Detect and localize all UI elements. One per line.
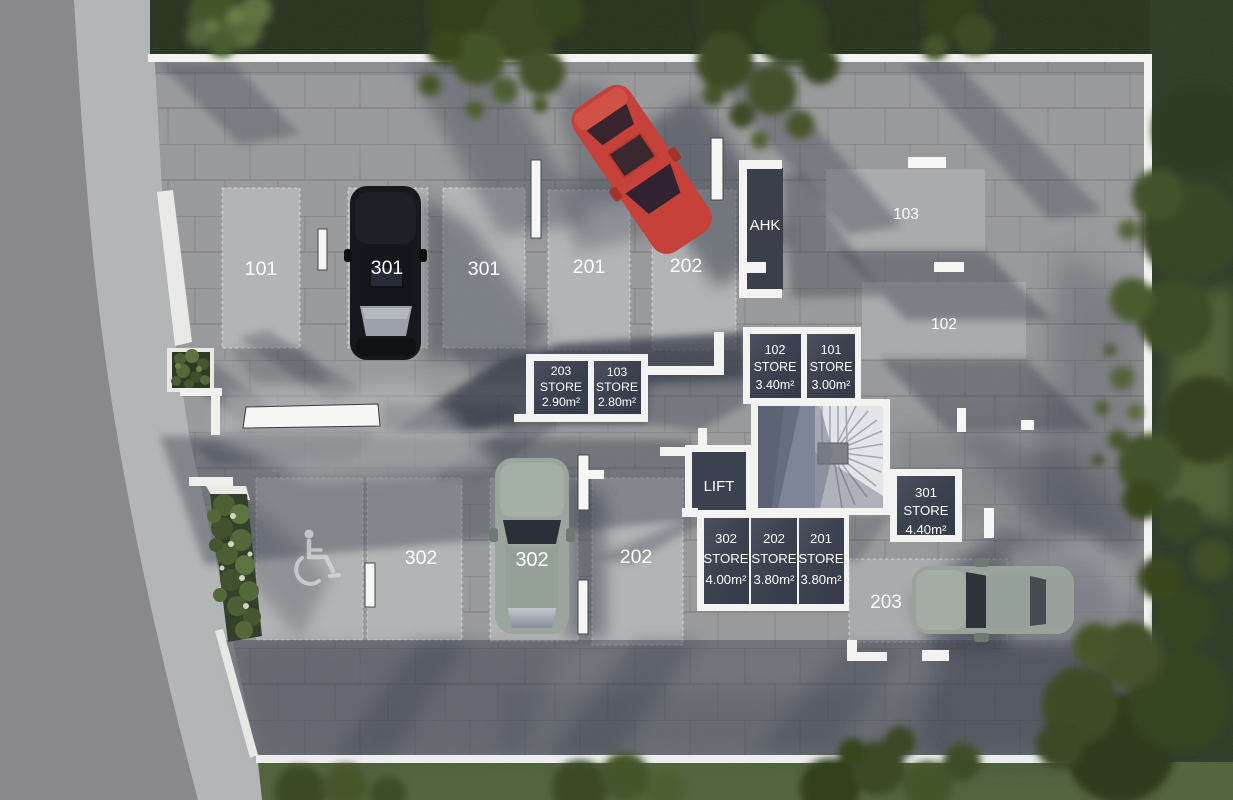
svg-text:STORE: STORE <box>751 551 796 566</box>
svg-text:STORE: STORE <box>810 360 853 374</box>
svg-text:202: 202 <box>763 531 785 546</box>
svg-text:4.40m²: 4.40m² <box>905 522 947 537</box>
svg-text:STORE: STORE <box>703 551 748 566</box>
svg-text:AHK: AHK <box>750 217 781 234</box>
svg-text:2.80m²: 2.80m² <box>598 395 636 409</box>
svg-text:STORE: STORE <box>798 551 843 566</box>
svg-text:201: 201 <box>573 256 606 278</box>
svg-text:202: 202 <box>620 546 653 568</box>
svg-text:301: 301 <box>915 485 937 500</box>
svg-text:102: 102 <box>765 343 786 357</box>
svg-text:STORE: STORE <box>540 380 582 394</box>
svg-text:STORE: STORE <box>596 380 638 394</box>
svg-text:203: 203 <box>551 364 572 378</box>
svg-text:3.00m²: 3.00m² <box>812 378 851 392</box>
svg-text:102: 102 <box>931 316 957 333</box>
svg-text:2.90m²: 2.90m² <box>542 395 580 409</box>
svg-text:302: 302 <box>405 547 438 569</box>
svg-text:302: 302 <box>715 531 737 546</box>
svg-text:4.00m²: 4.00m² <box>705 572 747 587</box>
svg-text:202: 202 <box>670 255 703 277</box>
svg-text:302: 302 <box>515 549 548 571</box>
svg-text:103: 103 <box>893 206 919 223</box>
svg-text:101: 101 <box>821 343 842 357</box>
svg-text:201: 201 <box>810 531 832 546</box>
svg-text:STORE: STORE <box>754 360 797 374</box>
svg-text:3.80m²: 3.80m² <box>800 572 842 587</box>
svg-text:3.40m²: 3.40m² <box>756 378 795 392</box>
svg-text:103: 103 <box>607 365 628 379</box>
svg-text:3.80m²: 3.80m² <box>753 572 795 587</box>
svg-text:STORE: STORE <box>903 503 948 518</box>
svg-text:301: 301 <box>468 258 501 280</box>
svg-text:203: 203 <box>870 592 902 613</box>
svg-text:301: 301 <box>371 257 404 279</box>
svg-text:LIFT: LIFT <box>704 478 735 495</box>
svg-text:101: 101 <box>245 258 278 280</box>
